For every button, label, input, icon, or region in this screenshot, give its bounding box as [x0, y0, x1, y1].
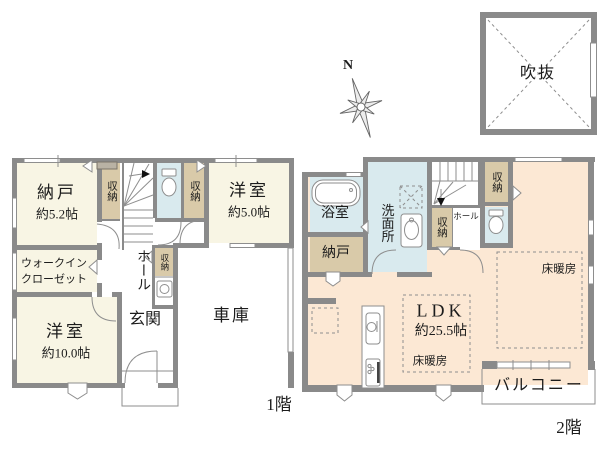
door-mark-ldk-1	[337, 385, 352, 401]
nando-1f-label: 納戸	[37, 183, 77, 203]
door-mark-ldk-2	[436, 385, 451, 401]
floor2-plan	[302, 157, 595, 404]
wic-label-line1: ウォークイン	[21, 258, 87, 271]
floor-heating-right-label: 床暖房	[542, 263, 577, 276]
storage-b-label: 収納	[188, 181, 200, 202]
toilet-icon-2f	[489, 210, 503, 234]
bathtub-icon	[312, 180, 360, 206]
stairs-up-arrow	[142, 170, 150, 178]
door-arc-genkan	[125, 351, 157, 383]
vanity-sink-icon	[401, 214, 422, 247]
balcony-label: バルコニー	[494, 377, 584, 395]
garage-label: 車庫	[213, 306, 251, 326]
compass-icon	[330, 71, 393, 144]
toilet-icon-1f	[162, 169, 176, 196]
compass-north-label: N	[343, 58, 353, 74]
room-yoshitsu5	[209, 163, 289, 243]
shelf-icon	[97, 162, 117, 169]
stairs-1f-icon	[124, 163, 153, 242]
nando-1f-size: 約5.2帖	[36, 208, 78, 223]
floor-heating-center-label: 床暖房	[413, 355, 448, 368]
kitchen-counter-icon	[362, 306, 384, 388]
storage-a-label: 収納	[105, 181, 117, 202]
genkan-label: 玄関	[129, 311, 161, 329]
ldk-label: LDK	[417, 301, 466, 322]
ldk-size: 約25.5帖	[415, 324, 468, 340]
balcony-sliding-door	[497, 362, 570, 368]
atrium-label: 吹抜	[520, 65, 556, 83]
door-arc-yoshitsu5	[180, 220, 204, 244]
bath-label: 浴室	[321, 206, 349, 222]
hall-2f-label: ホール	[453, 212, 479, 222]
stairs-area-2f	[430, 162, 478, 205]
nando-2f-label: 納戸	[322, 246, 350, 262]
storage-c-label: 収納	[159, 254, 169, 271]
floor-plan-page: N 吹抜 納戸 約5.2帖 収納 収納 洋室 約5.0帖 ウォークイン クローゼ…	[0, 0, 600, 450]
yoshitsu5-size: 約5.0帖	[228, 206, 270, 221]
kitchen-sink-icon	[366, 313, 380, 344]
wic-label-line2: クローゼット	[21, 274, 87, 287]
porch-outline	[122, 388, 178, 406]
floor2-title: 2階	[556, 418, 582, 438]
storage-top-2f-label: 収納	[490, 172, 502, 193]
door-arc-toilet-1f	[158, 222, 181, 245]
door-mark-yoshitsu10	[68, 383, 87, 399]
yoshitsu10-size: 約10.0帖	[42, 347, 91, 362]
washroom-label: 洗面所	[379, 204, 394, 243]
yoshitsu5-label: 洋室	[229, 181, 269, 201]
yoshitsu10-label: 洋室	[46, 322, 86, 342]
storage-left-2f-label: 収納	[435, 217, 447, 238]
hall-1f-label: ホール	[134, 249, 150, 291]
sink-icon-1f	[157, 281, 172, 297]
room-nando-1f	[17, 163, 97, 245]
floor1-title: 1階	[266, 395, 292, 415]
